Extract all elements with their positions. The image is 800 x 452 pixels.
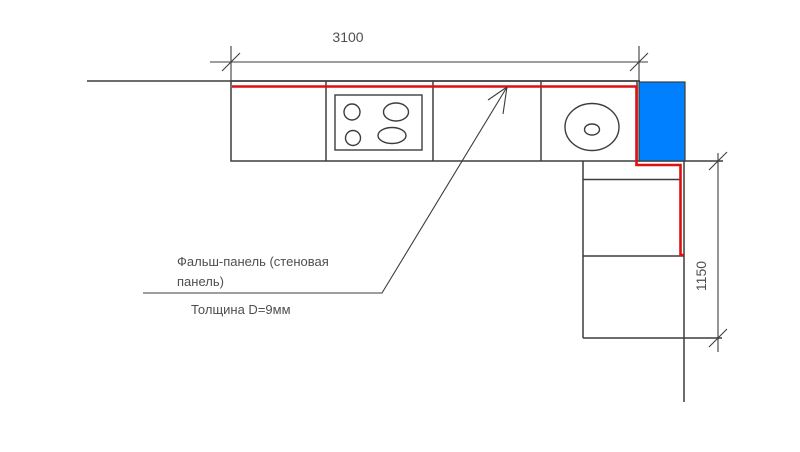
panel-annotation-line1: Фальш-панель (стеновая <box>177 252 329 272</box>
panel-annotation-line2: панель) <box>177 272 329 292</box>
burner-small-top <box>344 104 360 120</box>
panel-annotation: Фальш-панель (стеновая панель) <box>177 252 329 292</box>
false-panel-red-line <box>232 87 684 256</box>
kitchen-plan-drawing: 3100 1150 Фальш-панель (стеновая панель)… <box>0 0 800 452</box>
plan-linework <box>0 0 800 452</box>
burner-oval-top <box>384 103 409 121</box>
corner-cabinet-highlight <box>639 82 685 161</box>
cooktop-symbol <box>335 95 422 150</box>
dimension-top-width: 3100 <box>318 29 378 45</box>
counter-run-top <box>231 81 637 161</box>
sink-drain <box>585 124 600 135</box>
burner-small-bottom <box>346 131 361 146</box>
dimension-right-height: 1150 <box>693 246 709 306</box>
burner-oval-bottom <box>378 128 406 144</box>
thickness-note: Толщина D=9мм <box>191 300 291 320</box>
sink-symbol <box>565 104 619 151</box>
